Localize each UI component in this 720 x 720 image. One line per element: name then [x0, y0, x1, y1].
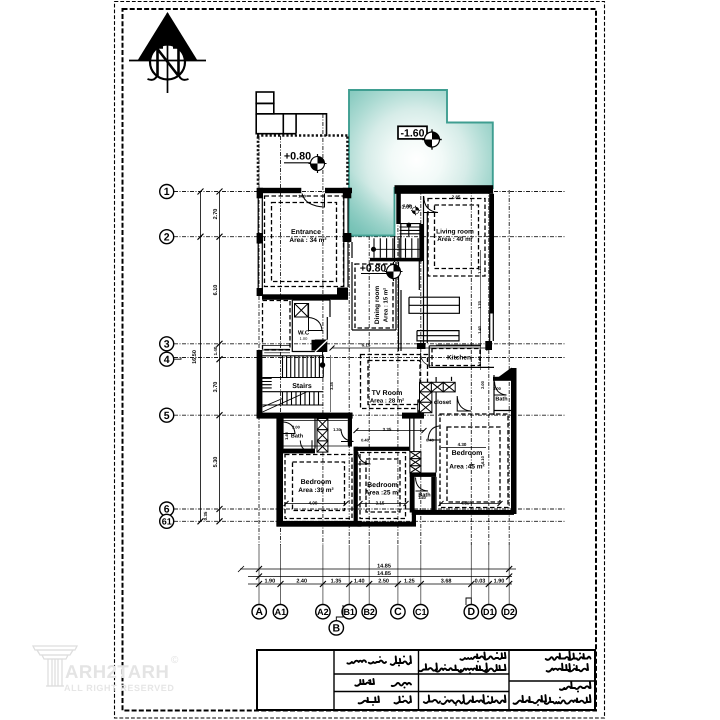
svg-text:Bath: Bath — [291, 434, 304, 440]
svg-text:1: 1 — [164, 186, 170, 198]
svg-text:2.00: 2.00 — [292, 425, 301, 430]
svg-text:1.90: 1.90 — [494, 578, 505, 584]
svg-text:Bedroom: Bedroom — [452, 449, 483, 457]
svg-text:2.70: 2.70 — [213, 209, 219, 220]
svg-text:Living room: Living room — [436, 229, 474, 236]
svg-text:+0.80: +0.80 — [284, 151, 311, 163]
svg-text:3.35: 3.35 — [329, 381, 334, 390]
svg-text:D: D — [468, 606, 476, 618]
svg-text:Area :39 m²: Area :39 m² — [298, 487, 334, 494]
svg-text:1.00: 1.00 — [300, 336, 309, 341]
svg-text:3.00: 3.00 — [493, 386, 502, 391]
svg-text:2.50: 2.50 — [378, 578, 389, 584]
svg-text:3.70: 3.70 — [213, 382, 219, 393]
svg-text:C: C — [394, 606, 402, 618]
svg-text:1.70: 1.70 — [477, 265, 482, 274]
svg-text:Area : 15 m²: Area : 15 m² — [383, 288, 390, 322]
svg-text:2.40: 2.40 — [296, 578, 307, 584]
svg-text:1.30: 1.30 — [333, 427, 342, 432]
svg-text:4.30: 4.30 — [461, 501, 470, 506]
svg-text:3.15: 3.15 — [376, 501, 385, 506]
svg-text:Area : 40 m²: Area : 40 m² — [437, 236, 472, 243]
svg-text:B1: B1 — [343, 607, 355, 617]
svg-text:14.85: 14.85 — [377, 571, 391, 577]
svg-text:0.35: 0.35 — [203, 511, 208, 520]
svg-text:6.15: 6.15 — [362, 343, 371, 348]
svg-text:5: 5 — [164, 410, 170, 422]
svg-text:1.70: 1.70 — [477, 300, 482, 309]
svg-text:6: 6 — [164, 504, 170, 516]
svg-text:3.68: 3.68 — [441, 578, 452, 584]
svg-text:14.85: 14.85 — [377, 563, 391, 569]
svg-text:Entrance: Entrance — [291, 229, 321, 236]
svg-text:16.50: 16.50 — [192, 350, 198, 364]
svg-text:1.40: 1.40 — [477, 355, 482, 364]
svg-text:C1: C1 — [415, 607, 427, 617]
svg-text:1.40: 1.40 — [477, 325, 482, 334]
svg-text:3.35: 3.35 — [383, 427, 392, 432]
svg-text:Stairs: Stairs — [292, 382, 312, 390]
svg-text:B2: B2 — [363, 607, 375, 617]
svg-text:Bedroom: Bedroom — [367, 481, 398, 489]
svg-text:1.40: 1.40 — [418, 495, 427, 500]
svg-text:61: 61 — [162, 517, 172, 527]
svg-text:2.85: 2.85 — [452, 195, 461, 200]
svg-text:TV Room: TV Room — [372, 390, 403, 397]
svg-text:©: © — [171, 655, 179, 666]
svg-text:Dining room: Dining room — [374, 286, 381, 324]
svg-text:+0.80: +0.80 — [360, 263, 387, 275]
svg-text:ALL RIGHT RESERVED: ALL RIGHT RESERVED — [64, 683, 174, 693]
svg-text:6.10: 6.10 — [213, 285, 219, 296]
svg-text:-1.60: -1.60 — [401, 128, 425, 140]
svg-text:4: 4 — [164, 354, 170, 366]
svg-text:D2: D2 — [503, 607, 515, 617]
svg-text:1.60: 1.60 — [298, 194, 307, 199]
svg-text:A1: A1 — [275, 607, 287, 617]
svg-text:2: 2 — [164, 231, 170, 243]
svg-text:Area : 34 m²: Area : 34 m² — [289, 237, 327, 244]
svg-text:1.25: 1.25 — [404, 578, 415, 584]
svg-text:5.30: 5.30 — [213, 457, 219, 468]
svg-text:0.40: 0.40 — [426, 438, 435, 443]
svg-text:1.00: 1.00 — [403, 203, 412, 208]
svg-text:6.10: 6.10 — [480, 455, 485, 464]
svg-text:ARH2TARH: ARH2TARH — [65, 661, 169, 682]
svg-text:0.03: 0.03 — [475, 578, 486, 584]
svg-text:A2: A2 — [317, 607, 329, 617]
svg-text:A: A — [255, 606, 263, 618]
svg-text:B: B — [333, 622, 341, 634]
svg-text:1.35: 1.35 — [331, 578, 342, 584]
svg-text:1.40: 1.40 — [354, 578, 365, 584]
svg-text:0.40: 0.40 — [361, 438, 370, 443]
svg-text:1.90: 1.90 — [264, 578, 275, 584]
svg-text:Bath: Bath — [495, 397, 508, 403]
svg-text:1.40: 1.40 — [284, 431, 289, 440]
svg-text:Kitchen: Kitchen — [447, 355, 471, 362]
svg-text:4.00: 4.00 — [309, 501, 318, 506]
svg-text:3: 3 — [164, 339, 170, 351]
svg-text:D1: D1 — [483, 607, 495, 617]
svg-text:Area : 28 m²: Area : 28 m² — [370, 398, 404, 405]
svg-text:1.40: 1.40 — [213, 346, 218, 355]
svg-text:Area :25 m²: Area :25 m² — [365, 490, 401, 497]
svg-text:2.00: 2.00 — [480, 380, 485, 389]
svg-text:closet: closet — [434, 399, 451, 406]
svg-text:Bedroom: Bedroom — [301, 478, 332, 486]
svg-text:4.30: 4.30 — [458, 442, 467, 447]
